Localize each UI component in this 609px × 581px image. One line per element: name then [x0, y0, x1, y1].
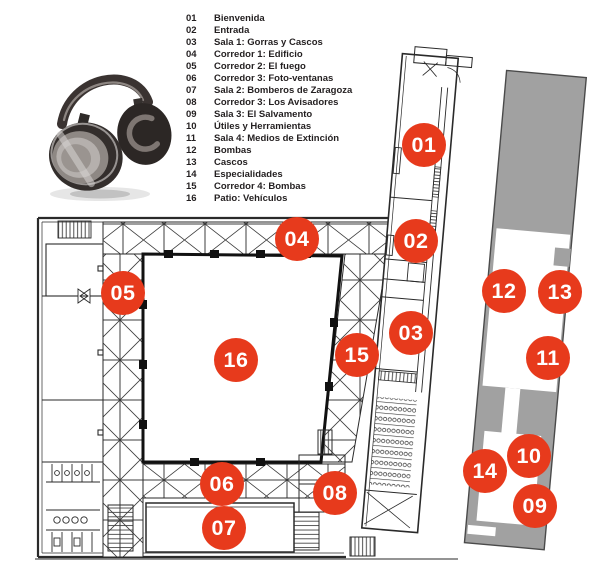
stairs-right: [294, 512, 319, 550]
map-marker-05[interactable]: 05: [101, 271, 145, 315]
map-marker-01[interactable]: 01: [402, 123, 446, 167]
map-marker-11[interactable]: 11: [526, 336, 570, 380]
map-marker-04[interactable]: 04: [275, 217, 319, 261]
entrance-hatch: [58, 221, 91, 238]
map-marker-16[interactable]: 16: [214, 338, 258, 382]
map-marker-09[interactable]: 09: [513, 484, 557, 528]
stairs-hatch: [350, 537, 375, 556]
map-marker-08[interactable]: 08: [313, 471, 357, 515]
floorplan-page: 01Bienvenida02Entrada03Sala 1: Gorras y …: [0, 0, 609, 581]
map-marker-13[interactable]: 13: [538, 270, 582, 314]
map-marker-10[interactable]: 10: [507, 434, 551, 478]
map-marker-02[interactable]: 02: [394, 219, 438, 263]
auditorium-seats: [370, 397, 417, 488]
toilets: [46, 464, 100, 552]
left-rooms: [42, 244, 103, 462]
map-marker-12[interactable]: 12: [482, 269, 526, 313]
map-marker-14[interactable]: 14: [463, 449, 507, 493]
stairs-left: [108, 505, 133, 551]
map-marker-03[interactable]: 03: [389, 311, 433, 355]
map-marker-07[interactable]: 07: [202, 506, 246, 550]
map-marker-06[interactable]: 06: [200, 462, 244, 506]
map-marker-15[interactable]: 15: [335, 333, 379, 377]
